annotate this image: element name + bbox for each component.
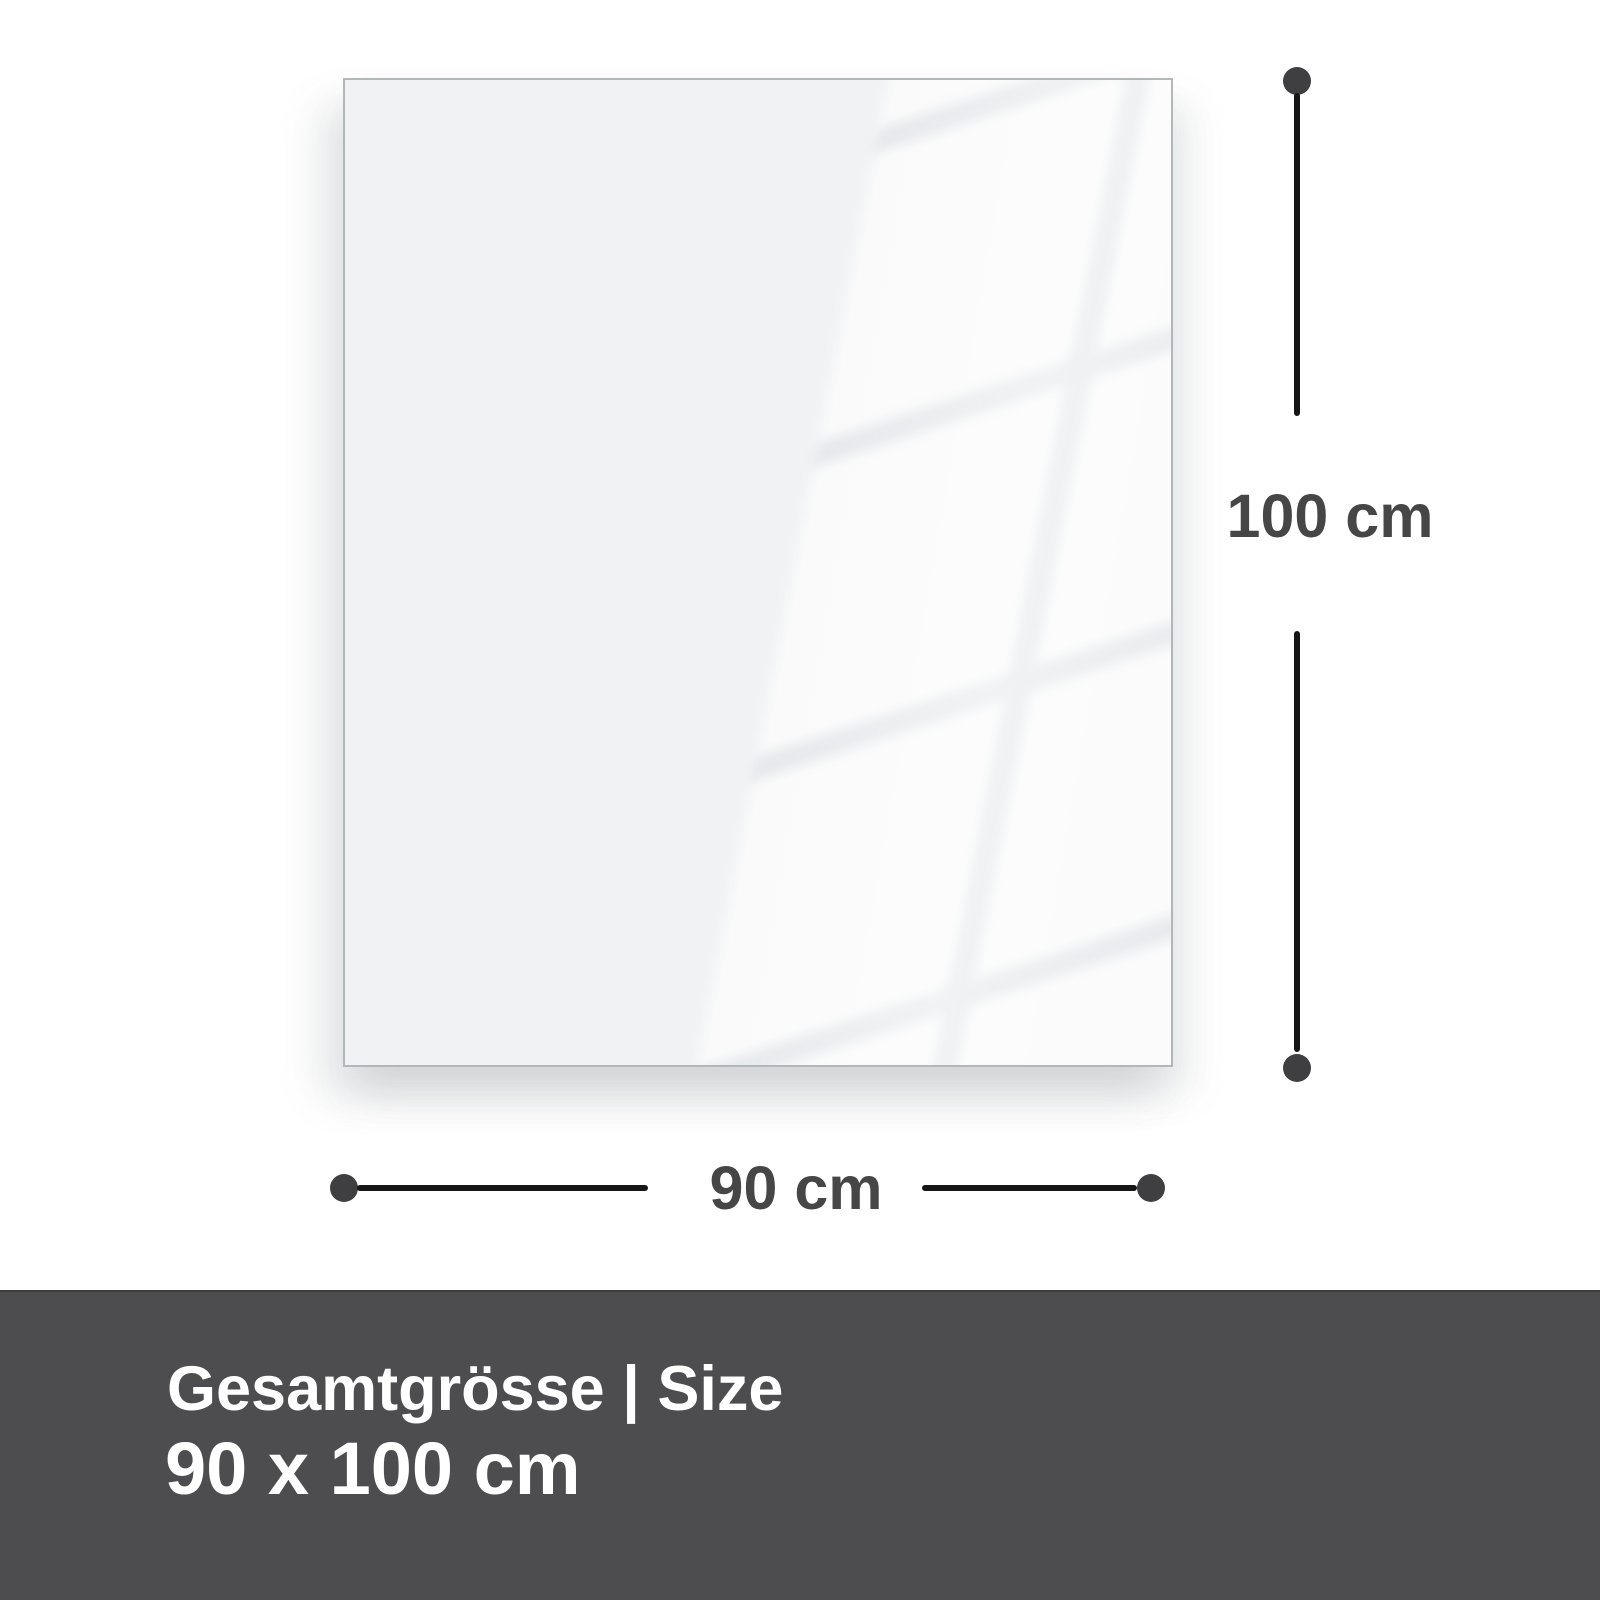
width-dimension-left-dot <box>330 1174 358 1202</box>
glass-reflection <box>632 78 1173 1067</box>
width-dimension-line-left <box>357 1185 648 1191</box>
height-dimension-top-dot <box>1283 67 1311 95</box>
footer-size-value: 90 x 100 cm <box>165 1432 581 1506</box>
product-panel <box>343 78 1173 1067</box>
height-dimension-line-lower <box>1294 631 1300 1052</box>
width-dimension-line-right <box>922 1185 1137 1191</box>
footer-size-title: Gesamtgrösse | Size <box>167 1358 783 1421</box>
reflection-tile <box>757 386 1065 756</box>
reflection-tile <box>818 78 1126 442</box>
height-dimension-bottom-dot <box>1283 1054 1311 1082</box>
size-footer: Gesamtgrösse | Size 90 x 100 cm <box>0 1290 1600 1600</box>
height-dimension-label: 100 cm <box>1155 479 1505 553</box>
reflection-tile <box>696 700 1004 1067</box>
height-dimension-line-upper <box>1294 93 1300 416</box>
width-dimension-right-dot <box>1137 1174 1165 1202</box>
product-size-diagram: 100 cm 90 cm Gesamtgrösse | Size 90 x 10… <box>0 0 1600 1600</box>
width-dimension-label: 90 cm <box>646 1151 946 1225</box>
